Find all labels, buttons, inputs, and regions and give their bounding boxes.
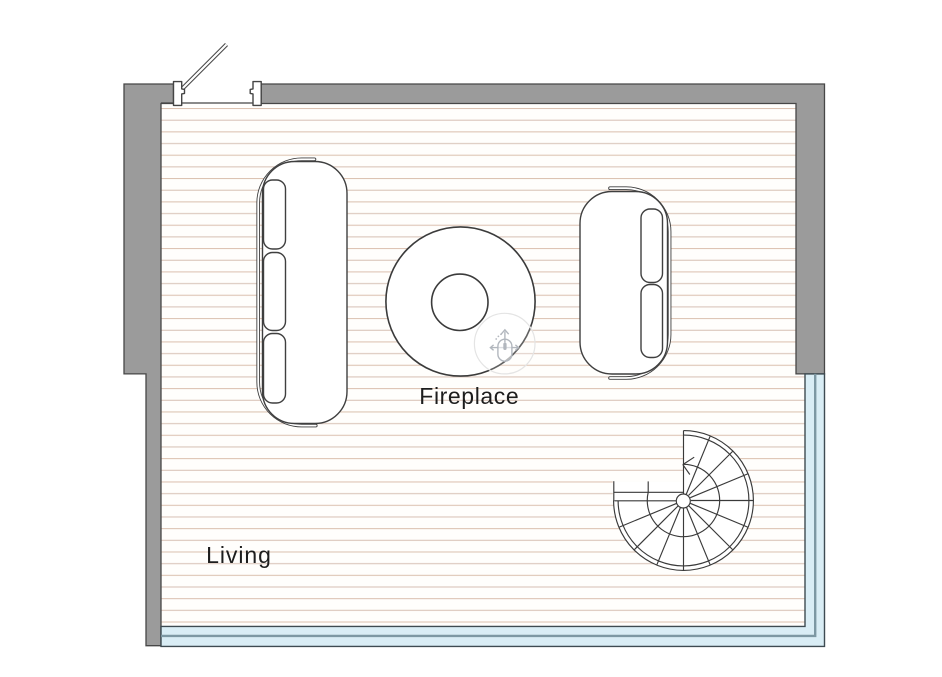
svg-text:Living: Living	[206, 542, 272, 568]
svg-text:Fireplace: Fireplace	[419, 383, 519, 409]
